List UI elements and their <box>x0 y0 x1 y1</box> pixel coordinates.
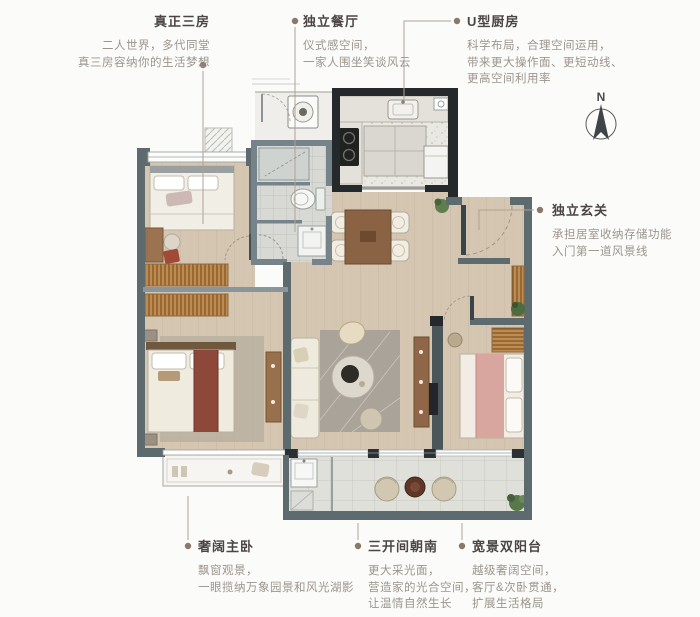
callout-line: 飘窗观景， <box>198 563 354 580</box>
callout-line: 更高空间利用率 <box>467 71 623 88</box>
leader-dot <box>292 18 298 24</box>
gas-meter <box>434 98 448 110</box>
leader-dot <box>454 18 460 24</box>
callout-double-balcony: 宽景双阳台 越级奢阔空间， 客厅&次卧贯通， 扩展生活格局 <box>472 536 564 613</box>
leader-dot <box>185 543 191 549</box>
pink-coverlet <box>476 354 504 438</box>
nightstand <box>144 330 157 341</box>
refrigerator <box>424 146 448 178</box>
headboard <box>146 342 236 350</box>
callout-u-shaped-kitchen: U型厨房 科学布局，合理空间运用， 带来更大操作面、更短动线、 更高空间利用率 <box>467 11 623 88</box>
throw-pillow <box>293 403 309 419</box>
table-centerpiece <box>360 231 376 242</box>
callout-line: 一家人围坐笑谈风云 <box>303 55 411 72</box>
slippers <box>181 466 187 477</box>
desk-chair <box>164 234 180 250</box>
callout-line: 科学布局，合理空间运用， <box>467 38 623 55</box>
callout-line: 带来更大操作面、更短动线、 <box>467 55 623 72</box>
callout-line: 客厅&次卧贯通， <box>472 580 564 597</box>
callout-title: 独立餐厅 <box>303 11 411 30</box>
callout-title: 宽景双阳台 <box>472 536 564 555</box>
pillow <box>506 398 522 432</box>
compass: N <box>586 90 616 140</box>
callout-independent-dining: 独立餐厅 仪式感空间， 一家人围坐笑谈风云 <box>303 11 411 71</box>
callout-line: 真三房容纳你的生活梦想 <box>78 55 210 72</box>
bedroom2-area <box>145 166 234 286</box>
floor-plan-page: N 真正三房 二人世界，多代同堂 真三房容纳你的生活梦想 独立餐厅 仪式感空间，… <box>0 0 700 617</box>
bay-window <box>163 455 285 486</box>
callout-line: 让温情自然生长 <box>368 596 476 613</box>
dresser <box>266 352 281 422</box>
ac-platform <box>205 128 232 155</box>
callout-line: 入门第一道风景线 <box>552 244 672 261</box>
throw-pillow <box>293 347 310 364</box>
desk <box>145 228 163 262</box>
compass-n-label: N <box>597 90 606 104</box>
north-needle <box>593 104 609 140</box>
toilet-tank <box>316 188 325 210</box>
wardrobe <box>145 264 228 286</box>
callout-south-facing: 三开间朝南 更大采光面， 营造家的光合空间， 让温情自然生长 <box>368 536 476 613</box>
callout-line: 越级奢阔空间， <box>472 563 564 580</box>
callout-line: 一眼揽纳万象园景和风光湖影 <box>198 580 354 597</box>
callout-line: 承担居室收纳存储功能 <box>552 227 672 244</box>
callout-true-three-rooms: 真正三房 二人世界，多代同堂 真三房容纳你的生活梦想 <box>78 11 210 71</box>
callout-independent-foyer: 独立玄关 承担居室收纳存储功能 入门第一道风景线 <box>552 200 672 260</box>
callout-line: 更大采光面， <box>368 563 476 580</box>
callout-title: 真正三房 <box>78 11 210 30</box>
pouf <box>360 408 382 430</box>
entrance-door <box>461 205 466 255</box>
wardrobe <box>145 294 228 316</box>
pillow <box>154 176 184 190</box>
callout-title: 奢阔主卧 <box>198 536 354 555</box>
sliding-panel <box>429 383 438 415</box>
callout-line: 营造家的光合空间， <box>368 580 476 597</box>
bedroom3-door <box>470 296 474 320</box>
teacup <box>228 470 233 475</box>
balcony-chair <box>432 477 456 501</box>
side-table <box>448 333 462 347</box>
bed-runner <box>194 350 218 432</box>
callout-line: 二人世界，多代同堂 <box>78 38 210 55</box>
callout-title: 独立玄关 <box>552 200 672 219</box>
leader-dot <box>355 543 361 549</box>
callout-title: 三开间朝南 <box>368 536 476 555</box>
wardrobe <box>492 328 524 352</box>
shower <box>259 148 309 180</box>
callout-title: U型厨房 <box>467 11 623 30</box>
accent-pillow <box>158 371 180 381</box>
red-cushion <box>163 249 180 264</box>
floor-plan: N <box>0 0 700 617</box>
callout-line: 扩展生活格局 <box>472 596 564 613</box>
callout-line: 仪式感空间， <box>303 38 411 55</box>
leader-dot <box>537 207 543 213</box>
callout-master-bedroom: 奢阔主卧 飘窗观景， 一眼揽纳万象园景和风光湖影 <box>198 536 354 596</box>
pillow <box>506 358 522 392</box>
pillow <box>152 353 186 369</box>
nightstand <box>144 434 157 445</box>
balcony-chair <box>375 477 399 501</box>
slippers <box>172 466 178 477</box>
